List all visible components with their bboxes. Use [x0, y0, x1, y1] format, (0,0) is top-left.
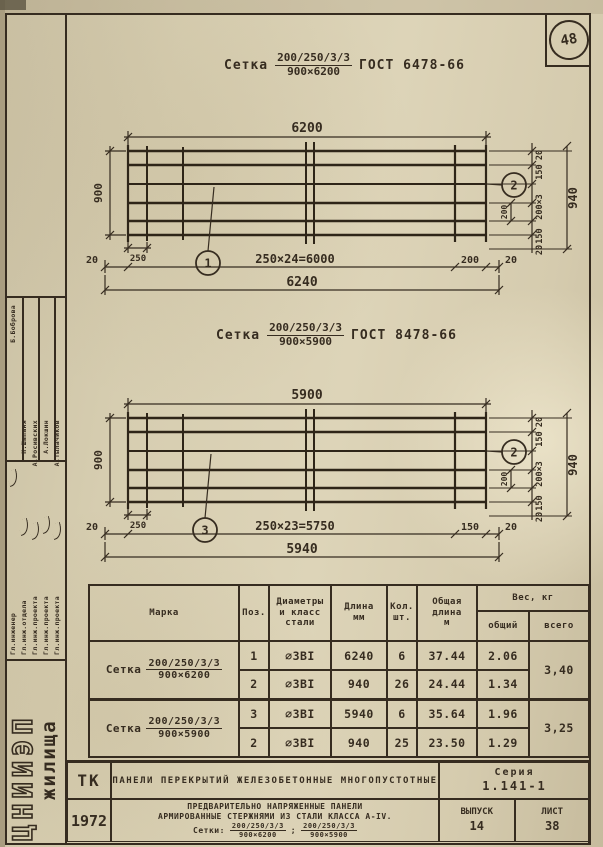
description-line-2: армированные стержнями из стали класса А… — [158, 812, 392, 822]
table-row: Сетка 200/250/3/3 900×6200 1 ∅3ВI 6240 6… — [89, 641, 589, 670]
mesh-diagram-2: 5900 900 250 20 250×23=5750 150 20 5940 … — [80, 382, 600, 582]
mesh-title-2-fraction: 200/250/3/3 900×5900 — [267, 322, 344, 348]
signer-role: Гл.инж.проекта — [42, 596, 50, 655]
paper-top-shade — [0, 0, 603, 14]
sidebar-divider-line — [65, 13, 67, 845]
title-block-sheet: Лист 38 — [515, 799, 591, 842]
signer-name: А.Локшин — [42, 420, 50, 454]
dim-chain-2-3: 150 — [535, 495, 545, 510]
callout-label-3: 3 — [201, 524, 208, 538]
mesh-wires-2 — [128, 409, 487, 511]
header-weight: Вес, кг — [477, 585, 589, 611]
page-number-circle: 48 — [546, 17, 592, 63]
cell-length: 940 — [331, 728, 387, 757]
dim-chain-1-2: 200×3 — [535, 194, 545, 220]
specification-table: Марка Поз. Диаметры и класс стали Длина … — [88, 584, 590, 758]
signature-mark — [6, 469, 20, 487]
callout-label-2: 2 — [510, 179, 517, 193]
mark-num-1: 200/250/3/3 — [146, 658, 222, 671]
net-2-num: 200/250/3/3 — [301, 822, 357, 831]
signer-role: Гл.инж.проекта — [53, 596, 61, 655]
mesh-title-2-numerator: 200/250/3/3 — [267, 322, 344, 336]
description-line-1: Предварительно напряженные панели — [187, 802, 362, 812]
issue-label: Выпуск — [460, 807, 493, 818]
sidebar-grid-line — [5, 659, 66, 661]
dim-top-1: 6200 — [291, 121, 322, 136]
header-weight-common: общий — [477, 611, 529, 641]
net-1-fraction: 200/250/3/3 900×6200 — [230, 822, 286, 839]
mesh-title-1-fraction: 200/250/3/3 900×6200 — [275, 52, 352, 78]
net-2-fraction: 200/250/3/3 900×5900 — [301, 822, 357, 839]
mesh-title-2-gost: ГОСТ 8478-66 — [351, 328, 457, 343]
cell-weight: 1.29 — [477, 728, 529, 757]
cell-total-length: 35.64 — [417, 699, 477, 728]
signer-name: А.Тылачиков — [53, 420, 61, 466]
cell-diameter: ∅3ВI — [269, 670, 331, 699]
header-length: Длина мм — [331, 585, 387, 641]
dim-spacing-2: 250×23=5750 — [255, 519, 334, 533]
dim-left-2: 900 — [92, 450, 105, 470]
signature-mark — [28, 522, 42, 540]
cell-pos: 3 — [239, 699, 269, 728]
header-pos: Поз. — [239, 585, 269, 641]
nets-separator: ; — [291, 826, 296, 836]
signer-role: Гл.инженер — [9, 613, 17, 655]
mesh-title-2: Сетка 200/250/3/3 900×5900 ГОСТ 8478-66 — [216, 322, 457, 348]
institute-name-bottom: жилища — [38, 719, 60, 800]
sheet-value: 38 — [545, 819, 559, 834]
page-number-box: 48 — [545, 15, 591, 67]
mesh-title-2-denominator: 900×5900 — [279, 336, 332, 349]
dim-chain-2-4: 20 — [535, 512, 545, 522]
mark-prefix-1: Сетка — [106, 663, 142, 676]
dim-chain-2-0: 20 — [535, 417, 545, 427]
mark-prefix-2: Сетка — [106, 722, 142, 735]
sidebar-grid-line — [5, 296, 66, 298]
mark-den-1: 900×6200 — [158, 670, 210, 682]
series-value: 1.141-1 — [482, 779, 547, 795]
dim-chain-2-1: 150 — [535, 431, 545, 446]
signature-mark — [50, 522, 64, 540]
dim-total-1: 6240 — [286, 275, 317, 290]
header-mark: Марка — [89, 585, 239, 641]
signer-role: Гл.инж.отдела — [20, 600, 28, 655]
header-total-length: Общая длина м — [417, 585, 477, 641]
dim-margin-left-2: 20 — [86, 522, 98, 533]
mark-cell-1: Сетка 200/250/3/3 900×6200 — [89, 641, 239, 699]
mesh-title-1-gost: ГОСТ 6478-66 — [359, 58, 465, 73]
dim-right-total-1: 940 — [566, 187, 580, 209]
signer-name: А.Росивских — [31, 420, 39, 466]
dim-spacing-1: 250×24=6000 — [255, 252, 334, 266]
title-block-project-name: Панели перекрытий железобетонные многопу… — [111, 762, 439, 799]
series-label: Серия — [494, 766, 534, 779]
issue-value: 14 — [470, 819, 484, 834]
mark-num-2: 200/250/3/3 — [146, 716, 222, 729]
description-nets: Сетки: 200/250/3/3 900×6200 ; 200/250/3/… — [193, 822, 357, 839]
mark-fraction-2: 200/250/3/3 900×5900 — [146, 716, 222, 740]
cell-weight: 2.06 — [477, 641, 529, 670]
frame-top-line — [5, 13, 591, 15]
dim-right-total-2: 940 — [566, 454, 580, 476]
header-diameter: Диаметры и класс стали — [269, 585, 331, 641]
callout-label-2b: 2 — [510, 446, 517, 460]
title-block: ТК Панели перекрытий железобетонные мног… — [65, 760, 590, 845]
nets-label: Сетки: — [193, 826, 225, 836]
dimension-labels-2: 5900 900 250 20 250×23=5750 150 20 5940 … — [86, 388, 580, 557]
cell-pos: 1 — [239, 641, 269, 670]
net-1-den: 900×6200 — [239, 831, 277, 839]
dim-margin-left-1: 20 — [86, 255, 98, 266]
signer-name: Н.Шапаня — [20, 420, 28, 454]
dim-endspan-2: 250 — [130, 521, 146, 531]
table-row: Сетка 200/250/3/3 900×5900 3 ∅3ВI 5940 6… — [89, 699, 589, 728]
dim-chain-1-0: 20 — [535, 150, 545, 160]
cell-qty: 6 — [387, 699, 417, 728]
institute-name-top: ЦНИИЭП — [8, 713, 39, 841]
title-block-tk: ТК — [67, 762, 111, 799]
signature-row: Гл.инженер Б.Боброва — [8, 305, 18, 655]
signature-row: Гл.инж.отдела Н.Шапаня — [19, 420, 29, 655]
callout-label-1: 1 — [204, 257, 211, 271]
mesh-title-2-prefix: Сетка — [216, 328, 260, 343]
title-block-issue: Выпуск 14 — [439, 799, 515, 842]
dim-top-2: 5900 — [291, 388, 322, 403]
header-qty: Кол. шт. — [387, 585, 417, 641]
mesh-wires-1 — [128, 142, 487, 244]
cell-weight-total-1: 3,40 — [529, 641, 589, 699]
cell-diameter: ∅3ВI — [269, 699, 331, 728]
page-number: 48 — [559, 31, 578, 50]
title-block-description: Предварительно напряженные панели армиро… — [111, 799, 439, 842]
dim-inner-2: 200 — [500, 472, 509, 487]
cell-total-length: 37.44 — [417, 641, 477, 670]
sheet-label: Лист — [541, 807, 563, 818]
cell-weight-total-2: 3,25 — [529, 699, 589, 757]
signature-row: Гл.инж.проекта А.Тылачиков — [52, 420, 62, 655]
cell-total-length: 24.44 — [417, 670, 477, 699]
net-1-num: 200/250/3/3 — [230, 822, 286, 831]
title-block-series: Серия 1.141-1 — [439, 762, 590, 799]
drawing-sheet: 48 Сетка 200/250/3/3 900×6200 ГОСТ 6478-… — [0, 0, 603, 847]
scan-corner-shadow — [0, 0, 26, 10]
dim-endright-2: 150 — [461, 522, 479, 533]
signature-row: Гл.инж.проекта А.Локшин — [41, 420, 51, 655]
cell-length: 6240 — [331, 641, 387, 670]
dim-chain-1-4: 20 — [535, 245, 545, 255]
signer-role: Гл.инж.проекта — [31, 596, 39, 655]
dim-margin-right-1: 20 — [505, 255, 517, 266]
cell-total-length: 23.50 — [417, 728, 477, 757]
net-2-den: 900×5900 — [310, 831, 348, 839]
cell-qty: 26 — [387, 670, 417, 699]
mesh-title-1: Сетка 200/250/3/3 900×6200 ГОСТ 6478-66 — [224, 52, 465, 78]
cell-diameter: ∅3ВI — [269, 728, 331, 757]
cell-weight: 1.34 — [477, 670, 529, 699]
dim-left-1: 900 — [92, 183, 105, 203]
cell-pos: 2 — [239, 670, 269, 699]
dim-inner-1: 200 — [500, 205, 509, 220]
cell-length: 940 — [331, 670, 387, 699]
dim-chain-1-1: 150 — [535, 164, 545, 179]
cell-pos: 2 — [239, 728, 269, 757]
frame-left-line — [5, 13, 7, 845]
title-block-year: 1972 — [67, 799, 111, 842]
mark-cell-2: Сетка 200/250/3/3 900×5900 — [89, 699, 239, 757]
mark-den-2: 900×5900 — [158, 729, 210, 741]
cell-length: 5940 — [331, 699, 387, 728]
mesh-diagram-1: 6200 900 250 20 250×24=6000 200 20 6240 … — [80, 115, 600, 315]
header-weight-total: всего — [529, 611, 589, 641]
mark-fraction-1: 200/250/3/3 900×6200 — [146, 658, 222, 682]
mesh-title-1-numerator: 200/250/3/3 — [275, 52, 352, 66]
dimension-labels-1: 6200 900 250 20 250×24=6000 200 20 6240 … — [86, 121, 580, 290]
cell-qty: 6 — [387, 641, 417, 670]
cell-qty: 25 — [387, 728, 417, 757]
signer-name: Б.Боброва — [9, 305, 17, 343]
dim-chain-2-2: 200×3 — [535, 461, 545, 487]
signature-row: Гл.инж.проекта А.Росивских — [30, 420, 40, 655]
cell-diameter: ∅3ВI — [269, 641, 331, 670]
dim-margin-right-2: 20 — [505, 522, 517, 533]
dim-total-2: 5940 — [286, 542, 317, 557]
dim-chain-1-3: 150 — [535, 228, 545, 243]
dim-endright-1: 200 — [461, 255, 479, 266]
dim-endspan-1: 250 — [130, 254, 146, 264]
mesh-title-1-denominator: 900×6200 — [287, 66, 340, 79]
cell-weight: 1.96 — [477, 699, 529, 728]
mesh-title-1-prefix: Сетка — [224, 58, 268, 73]
